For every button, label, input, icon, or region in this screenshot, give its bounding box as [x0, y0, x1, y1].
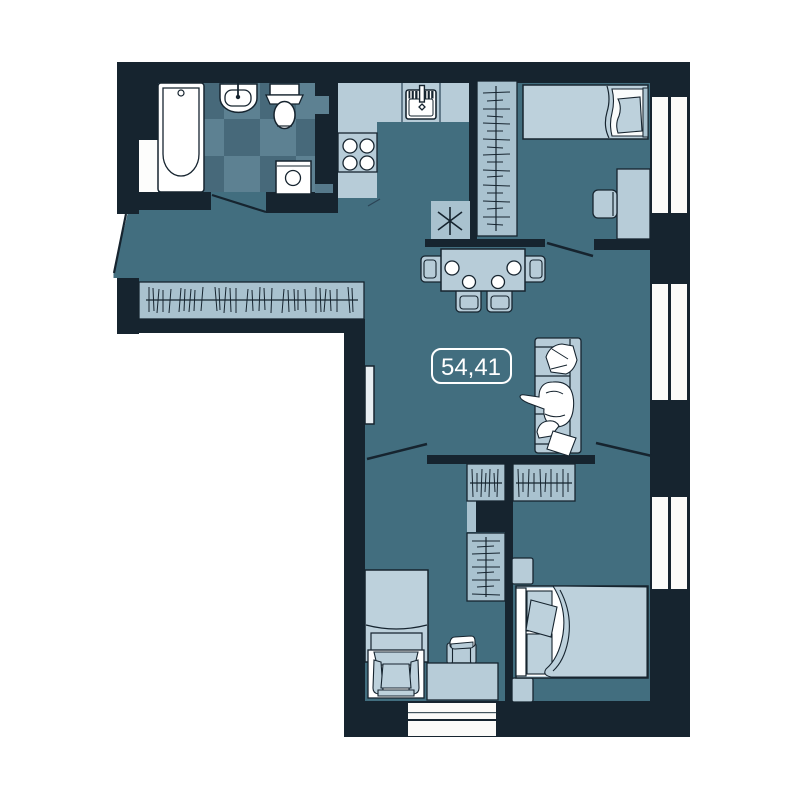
svg-text:54,41: 54,41 — [441, 354, 501, 381]
